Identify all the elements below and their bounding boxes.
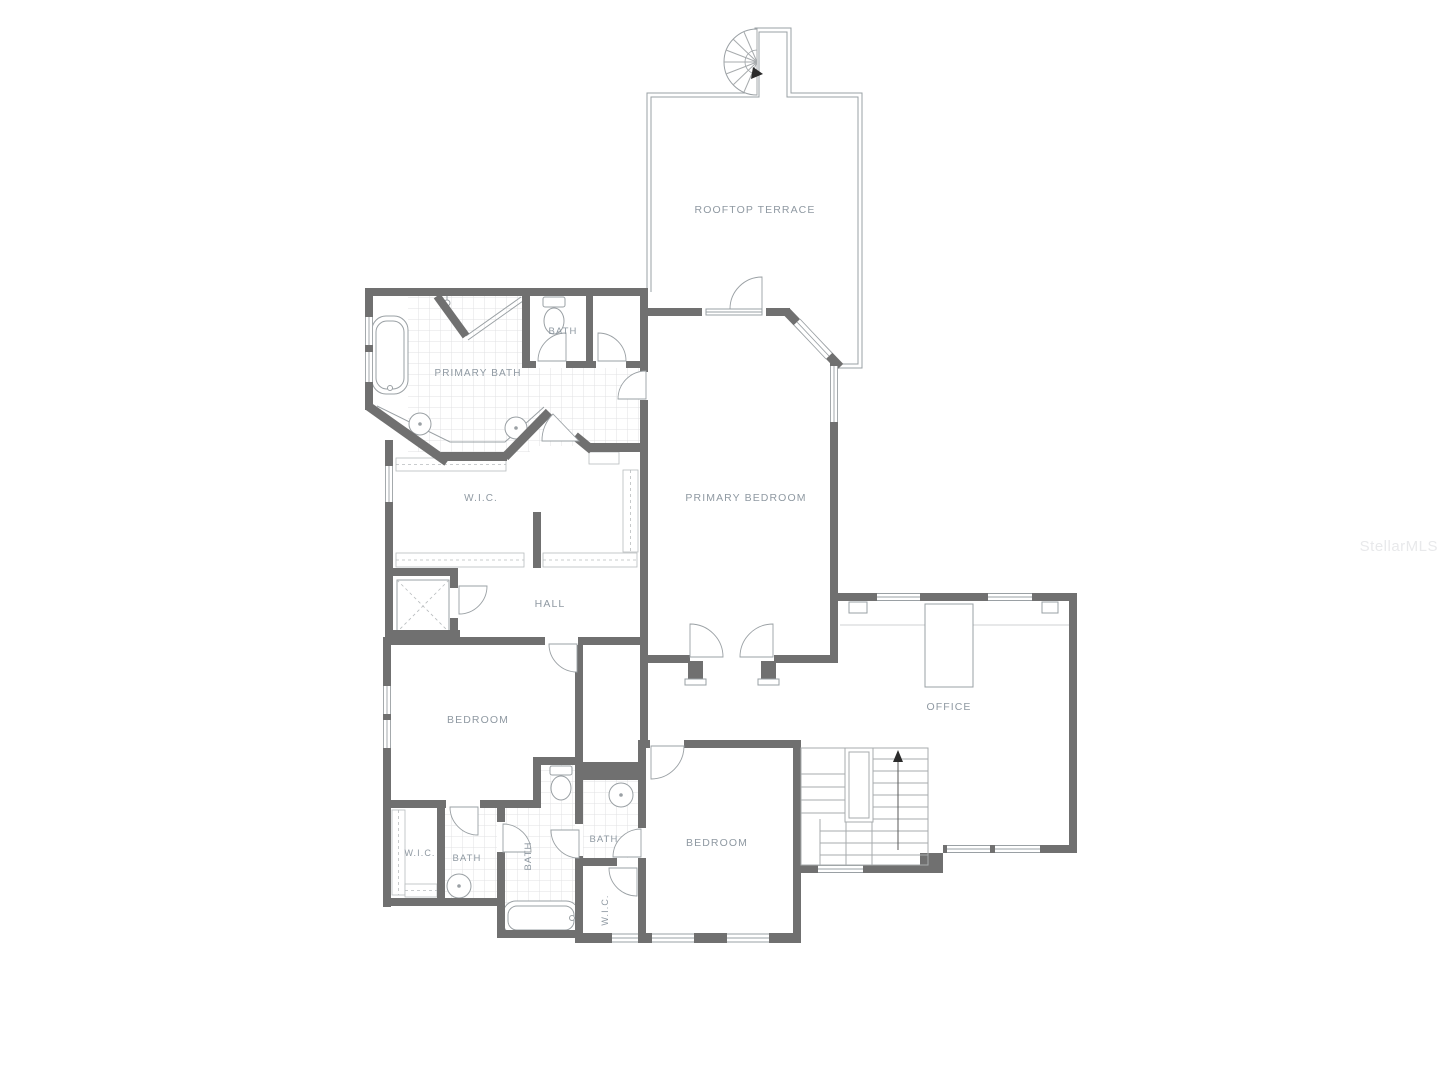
- room-label-rooftop-terrace: ROOFTOP TERRACE: [695, 204, 816, 216]
- floorplan-page: ROOFTOP TERRACEBATHPRIMARY BATHW.I.C.PRI…: [0, 0, 1440, 1080]
- sink-icon: [609, 783, 633, 807]
- room-label-wic-bottom: W.I.C.: [600, 894, 610, 925]
- door-arc: [730, 277, 762, 309]
- door-arc: [609, 868, 637, 896]
- bathtub-icon: [372, 316, 408, 394]
- room-label-bath-middle: BATH: [523, 841, 534, 870]
- door-arc: [651, 746, 684, 779]
- room-label-bath-right: BATH: [589, 834, 618, 845]
- corner-window: [794, 319, 832, 359]
- column: [688, 661, 703, 679]
- staircase: [801, 748, 928, 865]
- floorplan-drawing: ROOFTOP TERRACEBATHPRIMARY BATHW.I.C.PRI…: [0, 0, 1440, 1080]
- door-arc: [459, 586, 487, 614]
- desk-icon: [840, 602, 1069, 687]
- room-label-wic-primary: W.I.C.: [464, 493, 498, 504]
- door-arc: [598, 333, 626, 361]
- room-label-office: OFFICE: [926, 701, 971, 713]
- room-label-bath-upper: BATH: [548, 326, 577, 337]
- double-door-arc: [690, 624, 723, 657]
- room-label-bedroom-bottom: BEDROOM: [686, 837, 748, 849]
- room-label-bath-left: BATH: [452, 853, 481, 864]
- spiral-staircase-icon: [724, 29, 763, 95]
- room-label-hall: HALL: [535, 598, 566, 610]
- column: [761, 661, 776, 679]
- double-door-arc: [740, 624, 773, 657]
- bathtub-icon: [503, 901, 579, 935]
- room-label-primary-bath: PRIMARY BATH: [434, 368, 521, 379]
- room-label-wic-left: W.I.C.: [404, 848, 435, 858]
- room-label-primary-bedroom: PRIMARY BEDROOM: [685, 492, 806, 504]
- elevator: [397, 580, 449, 632]
- toilet-icon: [550, 766, 572, 800]
- door-arc: [549, 644, 577, 672]
- sink-icon: [447, 874, 471, 898]
- stair-up-arrow: [893, 750, 903, 850]
- room-label-bedroom-left: BEDROOM: [447, 714, 509, 726]
- watermark: StellarMLS: [1360, 538, 1438, 555]
- door-arc: [538, 333, 566, 361]
